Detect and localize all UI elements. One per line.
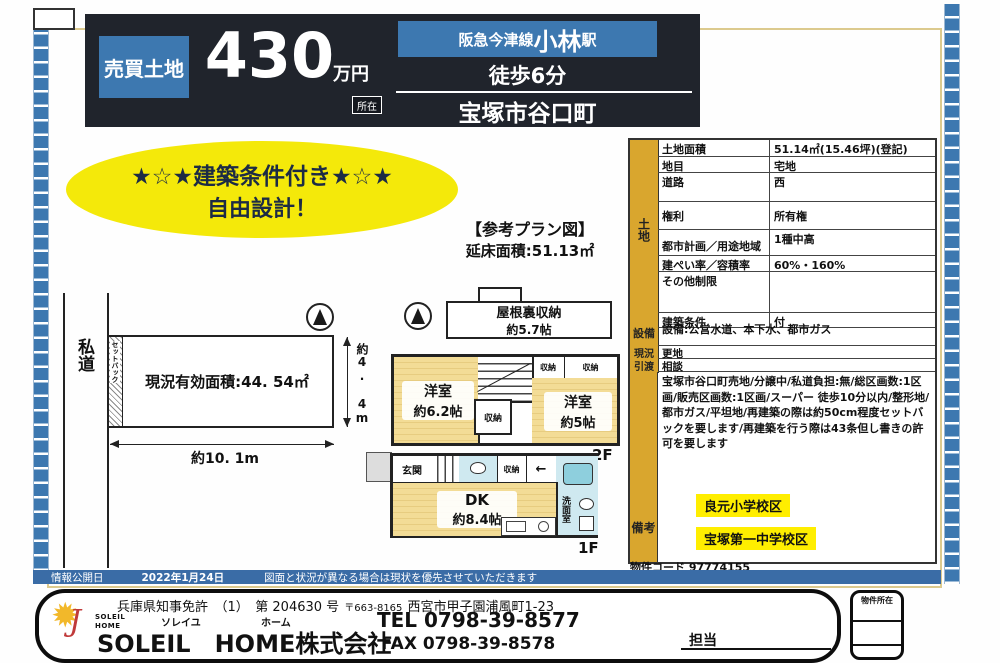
room-east-2f: 洋室 約5帖 [532,378,617,443]
row-label: 権利 [658,202,770,229]
section-land-label: 土地 [636,218,653,242]
room-east-size: 約5帖 [548,412,608,431]
stamp-line-1 [853,620,901,622]
station-box: 阪急今津線 小林 駅 [398,21,657,57]
section-biko-label: 備考 [631,519,655,536]
dk-name: DK [441,491,513,509]
plan-total-area: 延床面積:51.13㎡ [435,240,625,261]
info-note: 図面と状況が異なる場合は現状を優先させていただきます [264,570,537,585]
row-value: 60%・160% [770,256,935,271]
site-width-label: 約10. 1m [150,448,300,468]
bathroom-1f [556,456,598,493]
room-west-name: 洋室 [406,381,470,401]
stamp-line-2 [853,644,901,646]
table-row: 道路 西 [658,173,935,202]
walk-time: 徒歩6分 [398,60,657,90]
footer-company-box: ✹ J SOLEIL HOME 兵庫県知事免許 （1） 第 204630 号 〒… [35,589,841,663]
section-hikiwatashi-label: 引渡 [634,358,654,373]
header-divider [396,91,692,93]
stairs-lower-1f [431,456,460,482]
stamp-label: 物件所在 [853,595,901,606]
corner-box [33,8,75,30]
bathtub-icon [563,463,593,485]
row-label: その他制限 [658,272,770,312]
compass-icon-2f [404,302,432,330]
logo-j-swirl-icon: J [69,607,81,637]
attic-size: 約5.7帖 [506,321,551,338]
closet-mid-label: 収納 [484,411,502,424]
stair-direction-arrow-icon: ← [536,462,547,477]
company-name: SOLEIL HOME株式会社 [97,624,391,659]
genkyo-value: 更地 [658,346,935,359]
banner-line1: ★☆★建築条件付き★☆★ [131,157,393,191]
room-east-label: 洋室 約5帖 [544,392,612,431]
banner-line2: 自由設計！ [207,191,317,223]
location-tag-label: 所在 [357,98,377,113]
attic-box: 屋根裏収納 約5.7帖 [446,301,612,339]
room-west-size: 約6.2帖 [406,401,470,420]
tanto-line [681,648,831,650]
kitchen-counter [501,517,556,536]
info-date: 2022年1月24日 [142,570,225,585]
table-row: その他制限 [658,272,935,313]
closet-ne2-2f: 収納 [564,357,617,379]
station-suffix: 駅 [582,29,597,50]
hikiwatashi-value: 相談 [658,359,935,372]
section-setsubi: 設備 [630,320,659,347]
table-row: 都市計画／用途地域 1種中高 [658,230,935,256]
biko-text: 宝塚市谷口町売地/分譲中/私道負担:無/総区画数:1区画/販売区画数:1区画/ス… [662,374,931,452]
setsubi-value: 設備:公営水道、本下水、都市ガス [658,320,935,346]
plan-title-block: 【参考プラン図】 延床面積:51.13㎡ [435,216,625,261]
school-district-junior-high: 宝塚第一中学校区 [696,527,816,550]
room-east-name: 洋室 [548,392,608,412]
floor2-plan: 洋室 約6.2帖 収納 収納 収納 洋室 約5帖 [391,354,620,446]
kitchen-sink-icon [506,521,526,532]
closet-ne2-label: 収納 [583,362,599,373]
closet-1f: 収納 [497,456,527,482]
row-value: 51.14㎡(15.46坪)(登記) [770,140,935,156]
price-value: 430 [197,19,342,92]
table-row: 地目 宅地 [658,157,935,173]
site-road-line-outer [63,293,65,568]
location-tag: 所在 [352,96,382,114]
row-label: 都市計画／用途地域 [658,230,770,255]
info-date-label: 情報公開日 [51,570,104,585]
washer-icon [579,516,594,531]
rail-line-label: 阪急今津線 [458,29,533,50]
sink-icon [579,498,594,510]
price-unit: 万円 [333,60,369,86]
stamp-box: 物件所在 [850,590,904,660]
address: 宝塚市谷口町 [398,94,657,128]
dk-room-1f: DK 約8.4帖 [393,482,558,536]
flyer-page: 売買土地 430 万円 阪急今津線 小林 駅 徒歩6分 所在 宝塚市谷口町 ★☆… [0,0,1000,663]
property-type-box: 売買土地 [99,36,189,98]
site-depth-label: 約4. 4m [354,343,371,425]
row-label: 建ぺい率／容積率 [658,256,770,271]
row-value: 1種中高 [770,230,935,255]
school-district-elementary: 良元小学校区 [696,494,790,517]
room-west-label: 洋室 約6.2帖 [402,381,474,420]
land-rows: 土地面積 51.14㎡(15.46坪)(登記) 地目 宅地 道路 西 権利 所有… [658,140,935,328]
room-west-2f: 洋室 約6.2帖 [394,357,480,443]
table-row: 土地面積 51.14㎡(15.46坪)(登記) [658,140,935,157]
site-area-label: 現況有効面積:44. 54㎡ [122,337,332,426]
license-text: 兵庫県知事免許 （1） 第 204630 号 [117,600,339,615]
row-value: 西 [770,173,935,201]
section-land: 土地 [630,140,659,321]
porch-1f [366,452,392,482]
closet-mid-2f: 収納 [474,399,512,435]
right-border-strip [944,4,960,584]
table-row: 権利 所有権 [658,202,935,230]
catch-banner: ★☆★建築条件付き★☆★ 自由設計！ [66,141,458,238]
site-depth-arrow [347,337,348,427]
row-value: 所有権 [770,202,935,229]
section-hikiwatashi: 引渡 [630,359,659,373]
toilet-icon [470,462,486,474]
closet-ne1-label: 収納 [540,362,556,373]
station-name: 小林 [534,22,582,57]
row-value: 宅地 [770,157,935,172]
row-value [770,272,935,312]
tel-number: TEL 0798-39-8577 [377,608,580,632]
header: 売買土地 430 万円 阪急今津線 小林 駅 徒歩6分 所在 宝塚市谷口町 [85,14,700,127]
closet-1f-label: 収納 [504,464,520,475]
floor1-plan: 玄関 収納 ← 洗面室 DK 約8.4帖 [390,453,598,538]
row-label: 土地面積 [658,140,770,156]
fax-number: FAX 0798-39-8578 [381,634,555,654]
site-road-label: 私道 [72,338,97,372]
stove-burner-icon [538,521,549,532]
section-biko: 備考 [630,372,658,562]
site-plot: セットバック 現況有効面積:44. 54㎡ [107,335,334,428]
entrance-1f: 玄関 [393,456,432,482]
tanto-label: 担当 [689,630,717,650]
spec-table: 土地 設備 現況 引渡 備考 土地面積 51.14㎡(15.46坪)(登記) 地… [628,138,937,564]
plan-title: 【参考プラン図】 [435,216,625,240]
washroom-1f: 洗面室 [556,492,598,535]
row-label: 道路 [658,173,770,201]
stairs-arrow-1f: ← [526,456,558,482]
floor1-label: 1F [578,539,599,557]
setback-label: セットバック [110,341,120,383]
stairs-diagonal [477,363,530,392]
table-row: 建ぺい率／容積率 60%・160% [658,256,935,272]
compass-icon [306,303,334,331]
row-label: 地目 [658,157,770,172]
closet-ne1-2f: 収納 [532,357,565,379]
left-border-strip [33,20,49,583]
info-bar: 情報公開日 2022年1月24日 図面と状況が異なる場合は現状を優先させていただ… [33,570,941,584]
entrance-label: 玄関 [402,462,422,477]
section-setsubi-label: 設備 [633,325,655,341]
washroom-label: 洗面室 [559,496,572,523]
biko-cell: 宝塚市谷口町売地/分譲中/私道負担:無/総区画数:1区画/販売区画数:1区画/ス… [658,372,935,562]
stairs-2f [478,357,534,403]
property-type-label: 売買土地 [104,53,184,82]
site-width-arrow [110,444,334,445]
toilet-room-1f [459,456,498,482]
attic-label: 屋根裏収納 [496,302,561,321]
